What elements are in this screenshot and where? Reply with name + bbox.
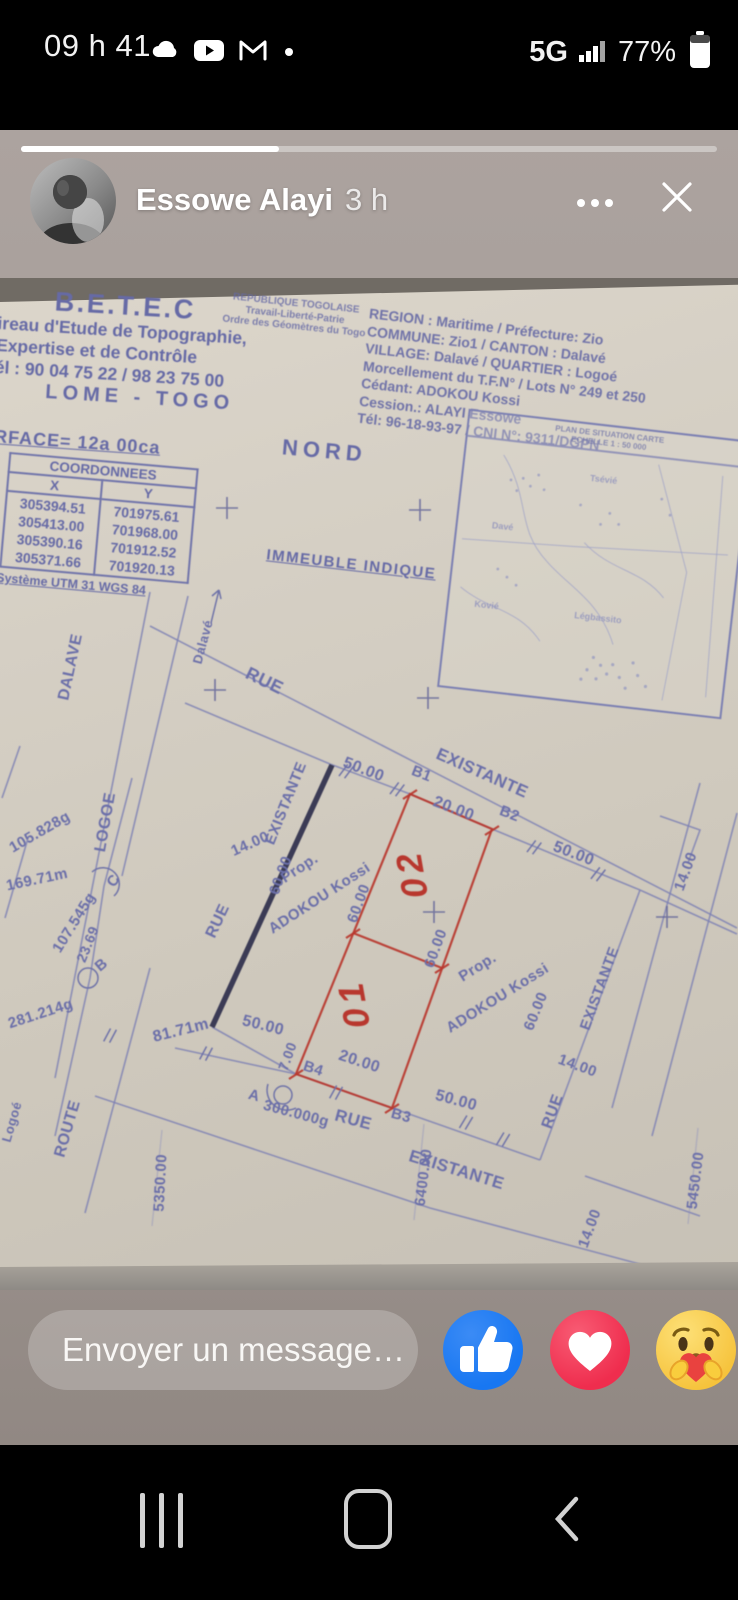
story-time-ago: 3 h — [345, 182, 388, 217]
dim-14-topright: 14.00 — [671, 850, 701, 893]
message-input[interactable] — [28, 1310, 418, 1390]
dim-50-bottomleft: 50.00 — [240, 1012, 285, 1039]
road-label-existante-right: EXISTANTE — [577, 944, 623, 1032]
dim-16971: 169.71m — [5, 865, 70, 895]
dim-20-top: 20.00 — [431, 793, 477, 824]
owner-right-name: ADOKOU Kossi — [443, 960, 552, 1037]
point-b4: B4 — [301, 1058, 326, 1080]
story-author[interactable]: Essowe Alayi3 h — [136, 182, 388, 218]
network-type: 5G — [529, 36, 568, 69]
like-button[interactable] — [443, 1310, 523, 1390]
cloud-icon — [148, 33, 182, 72]
road-label-existante-bottom: EXISTANTE — [407, 1146, 507, 1193]
road-label-rue-right: RUE — [539, 1092, 567, 1131]
grid-5350: 5350.00 — [151, 1153, 171, 1212]
dim-14-left: 14.00 — [228, 828, 271, 860]
road-label-route: ROUTE — [51, 1098, 83, 1159]
recents-button[interactable] — [140, 1493, 200, 1548]
recents-icon — [140, 1493, 145, 1548]
story-progress-bar — [21, 146, 717, 152]
like-thumb-icon — [443, 1310, 523, 1390]
road-label-existante-top: EXISTANTE — [433, 744, 531, 801]
youtube-icon — [191, 33, 227, 72]
map-place-3: Kovié — [474, 599, 499, 612]
road-label-rue-left: RUE — [203, 902, 233, 941]
road-label-logoe-small: Logoé — [0, 1100, 25, 1144]
dim-60-rightlot: 60.00 — [520, 990, 551, 1033]
dim-14-bottommid: 14.00 — [556, 1051, 599, 1081]
point-a: A — [246, 1086, 261, 1105]
grid-6400: 6400.00 — [412, 1148, 436, 1207]
north-label: NORD — [281, 434, 368, 467]
dim-50-right: 50.00 — [551, 838, 597, 869]
back-button[interactable] — [548, 1491, 584, 1547]
point-b: B — [92, 955, 112, 975]
road-label-dalave: DALAVE — [55, 632, 86, 702]
story-header: Essowe Alayi3 h — [0, 158, 738, 248]
road-label-existante-left: EXISTANTE — [262, 760, 311, 848]
gmail-icon — [236, 33, 270, 72]
lot-number-01: 01 — [329, 975, 378, 1031]
android-nav-bar — [0, 1445, 738, 1600]
dim-2369: 23.69 — [73, 924, 102, 965]
composer-bar — [0, 1308, 738, 1398]
map-place-4: Légbassito — [574, 610, 623, 625]
story-progress-fill — [21, 146, 279, 152]
coordinates-table: COORDONNEES X Y 305394.51 305413.00 3053… — [0, 452, 199, 584]
care-button[interactable] — [656, 1310, 736, 1390]
back-icon — [548, 1491, 584, 1547]
point-c: C — [103, 871, 123, 890]
clock: 09 h 41 — [44, 28, 151, 64]
battery-percent: 77% — [618, 36, 676, 69]
owner-left-name: ADOKOU Kossi — [266, 859, 374, 937]
notification-dot-icon — [279, 33, 299, 72]
dim-14-bottomright: 14.00 — [575, 1207, 605, 1250]
map-place-1: Tsévié — [589, 473, 617, 486]
signal-bars-icon — [576, 33, 610, 72]
dim-60-divider-right: 60.00 — [421, 927, 451, 970]
battery-icon — [684, 28, 716, 77]
love-button[interactable] — [550, 1310, 630, 1390]
map-place-2: Davé — [491, 520, 514, 532]
angle-107: 107.545g — [49, 890, 99, 956]
point-b1: B1 — [409, 762, 434, 785]
point-b2: B2 — [497, 802, 522, 825]
dim-50-bottomright: 50.00 — [433, 1087, 478, 1114]
dim-60-leftlot: 60.00 — [266, 854, 296, 897]
close-button[interactable] — [652, 172, 702, 222]
map-inset-drawing: Tsévié Davé Kovié Légbassito — [440, 437, 738, 711]
dim-20-bottom: 20.00 — [337, 1047, 383, 1076]
survey-document: B.E.T.E.C ireau d'Etude de Topographie, … — [0, 278, 738, 1290]
road-label-rue-top: RUE — [242, 663, 286, 698]
author-name: Essowe Alayi — [136, 182, 333, 217]
love-heart-icon — [550, 1310, 630, 1390]
phone-screen: 09 h 41 5G 77% — [0, 0, 738, 1600]
point-b3: B3 — [389, 1105, 413, 1127]
story-view: Essowe Alayi3 h B.E.T.E.C ireau d'Etude … — [0, 130, 738, 1445]
dim-50-top: 50.00 — [341, 754, 387, 785]
grid-5450: 5450.00 — [684, 1151, 708, 1210]
road-label-logoe: LOGOE — [92, 791, 119, 853]
direction-dalave-small: Dalavé — [190, 618, 216, 665]
avatar[interactable] — [30, 158, 116, 244]
close-icon — [652, 172, 702, 222]
more-options-button[interactable] — [565, 188, 625, 218]
angle-300: 300.000g — [261, 1097, 330, 1131]
lot-number-02: 02 — [387, 845, 436, 901]
home-button[interactable] — [344, 1489, 392, 1549]
status-bar: 09 h 41 5G 77% — [0, 0, 738, 130]
dim-60-divider-left: 60.00 — [344, 882, 374, 925]
dim-7: 7.00 — [275, 1040, 300, 1073]
owner-right-prop: Prop. — [456, 949, 500, 985]
angle-281: 281.214g — [6, 995, 75, 1032]
owner-left-prop: Prop. — [278, 850, 322, 887]
story-photo-survey-plan[interactable]: B.E.T.E.C ireau d'Etude de Topographie, … — [0, 278, 738, 1290]
care-hug-icon — [656, 1310, 736, 1390]
angle-105: 105.828g — [6, 808, 73, 856]
road-label-rue-bottom: RUE — [333, 1106, 374, 1134]
more-icon — [577, 199, 585, 207]
indicated-building-label: IMMEUBLE INDIQUE — [266, 546, 437, 582]
dim-8171: 81.71m — [151, 1015, 211, 1045]
location-map-inset: PLAN DE SITUATION CARTE ECHELLE 1 : 50 0… — [437, 409, 738, 720]
